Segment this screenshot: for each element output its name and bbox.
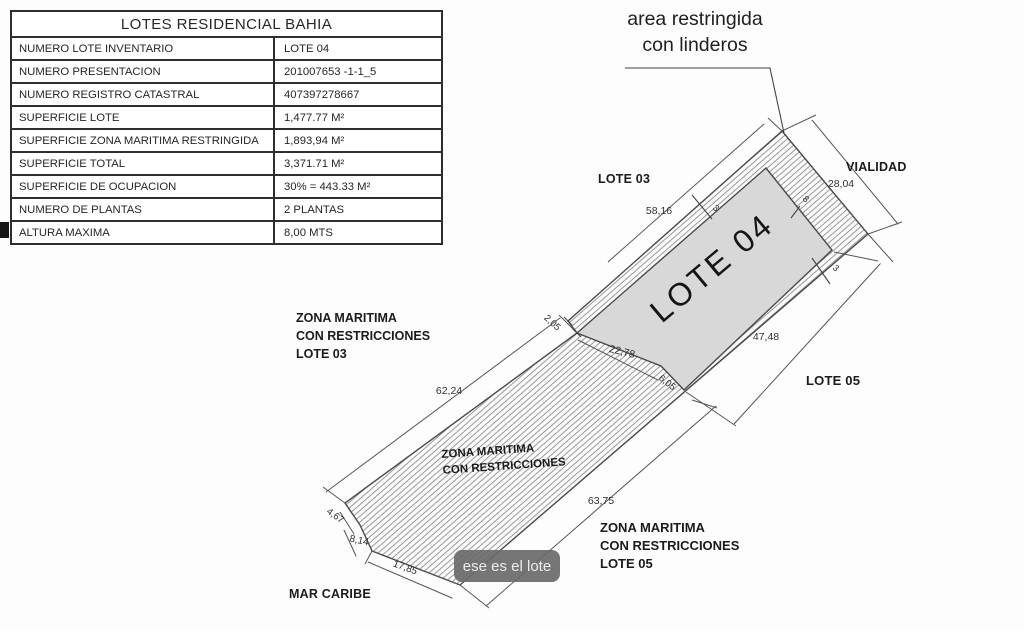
- row-value: LOTE 04: [274, 37, 442, 60]
- row-label: NUMERO DE PLANTAS: [11, 198, 274, 221]
- dim-47-48: 47,48: [753, 331, 779, 343]
- row-value: 30% = 443.33 M²: [274, 175, 442, 198]
- row-value: 1,893,94 M²: [274, 129, 442, 152]
- row-value: 8,00 MTS: [274, 221, 442, 244]
- cadastral-plan-sheet: LOTES RESIDENCIAL BAHIA NUMERO LOTE INVE…: [0, 0, 1024, 631]
- row-label: SUPERFICIE DE OCUPACION: [11, 175, 274, 198]
- callout-leader-line: [625, 68, 784, 133]
- zona03-line2: CON RESTRICCIONES: [296, 327, 430, 345]
- lot-annotation-tooltip: ese es el lote: [454, 550, 560, 582]
- table-row: NUMERO PRESENTACION201007653 -1-1_5: [11, 60, 442, 83]
- row-label: SUPERFICIE LOTE: [11, 106, 274, 129]
- row-label: NUMERO REGISTRO CATASTRAL: [11, 83, 274, 106]
- row-label: SUPERFICIE TOTAL: [11, 152, 274, 175]
- row-label: SUPERFICIE ZONA MARITIMA RESTRINGIDA: [11, 129, 274, 152]
- dim-28-04: 28,04: [828, 178, 854, 190]
- table-row: SUPERFICIE DE OCUPACION30% = 443.33 M²: [11, 175, 442, 198]
- row-label: NUMERO LOTE INVENTARIO: [11, 37, 274, 60]
- row-value: 407397278667: [274, 83, 442, 106]
- label-zona-lote03: ZONA MARITIMA CON RESTRICCIONES LOTE 03: [296, 309, 430, 363]
- dim-62-24: 62,24: [436, 385, 462, 397]
- scan-artifact: [0, 222, 9, 238]
- row-label: NUMERO PRESENTACION: [11, 60, 274, 83]
- table-row: NUMERO DE PLANTAS2 PLANTAS: [11, 198, 442, 221]
- row-value: 201007653 -1-1_5: [274, 60, 442, 83]
- label-lote05: LOTE 05: [806, 373, 860, 388]
- tooltip-text: ese es el lote: [463, 558, 551, 575]
- callout-line2: con linderos: [627, 32, 763, 58]
- callout-line1: area restringida: [627, 6, 763, 32]
- label-zona-lote05: ZONA MARITIMA CON RESTRICCIONES LOTE 05: [600, 519, 739, 573]
- table-row: SUPERFICIE ZONA MARITIMA RESTRINGIDA1,89…: [11, 129, 442, 152]
- row-label: ALTURA MAXIMA: [11, 221, 274, 244]
- row-value: 1,477.77 M²: [274, 106, 442, 129]
- zona03-line1: ZONA MARITIMA: [296, 309, 430, 327]
- table-row: ALTURA MAXIMA8,00 MTS: [11, 221, 442, 244]
- dim-63-75: 63,75: [588, 495, 614, 507]
- label-vialidad: VIALIDAD: [846, 160, 907, 174]
- label-lote03: LOTE 03: [598, 172, 650, 186]
- zona05-line2: CON RESTRICCIONES: [600, 537, 739, 555]
- table-title: LOTES RESIDENCIAL BAHIA: [11, 11, 442, 37]
- zona05-line3: LOTE 05: [600, 555, 739, 573]
- zona05-line1: ZONA MARITIMA: [600, 519, 739, 537]
- dim-58-16: 58,16: [646, 205, 672, 217]
- label-mar-caribe: MAR CARIBE: [289, 587, 371, 601]
- table-row: SUPERFICIE TOTAL3,371.71 M²: [11, 152, 442, 175]
- row-value: 3,371.71 M²: [274, 152, 442, 175]
- row-value: 2 PLANTAS: [274, 198, 442, 221]
- lot-spec-table: LOTES RESIDENCIAL BAHIA NUMERO LOTE INVE…: [10, 10, 443, 245]
- zona03-line3: LOTE 03: [296, 345, 430, 363]
- table-row: SUPERFICIE LOTE1,477.77 M²: [11, 106, 442, 129]
- table-row: NUMERO REGISTRO CATASTRAL407397278667: [11, 83, 442, 106]
- restricted-area-callout: area restringida con linderos: [627, 6, 763, 58]
- table-row: NUMERO LOTE INVENTARIOLOTE 04: [11, 37, 442, 60]
